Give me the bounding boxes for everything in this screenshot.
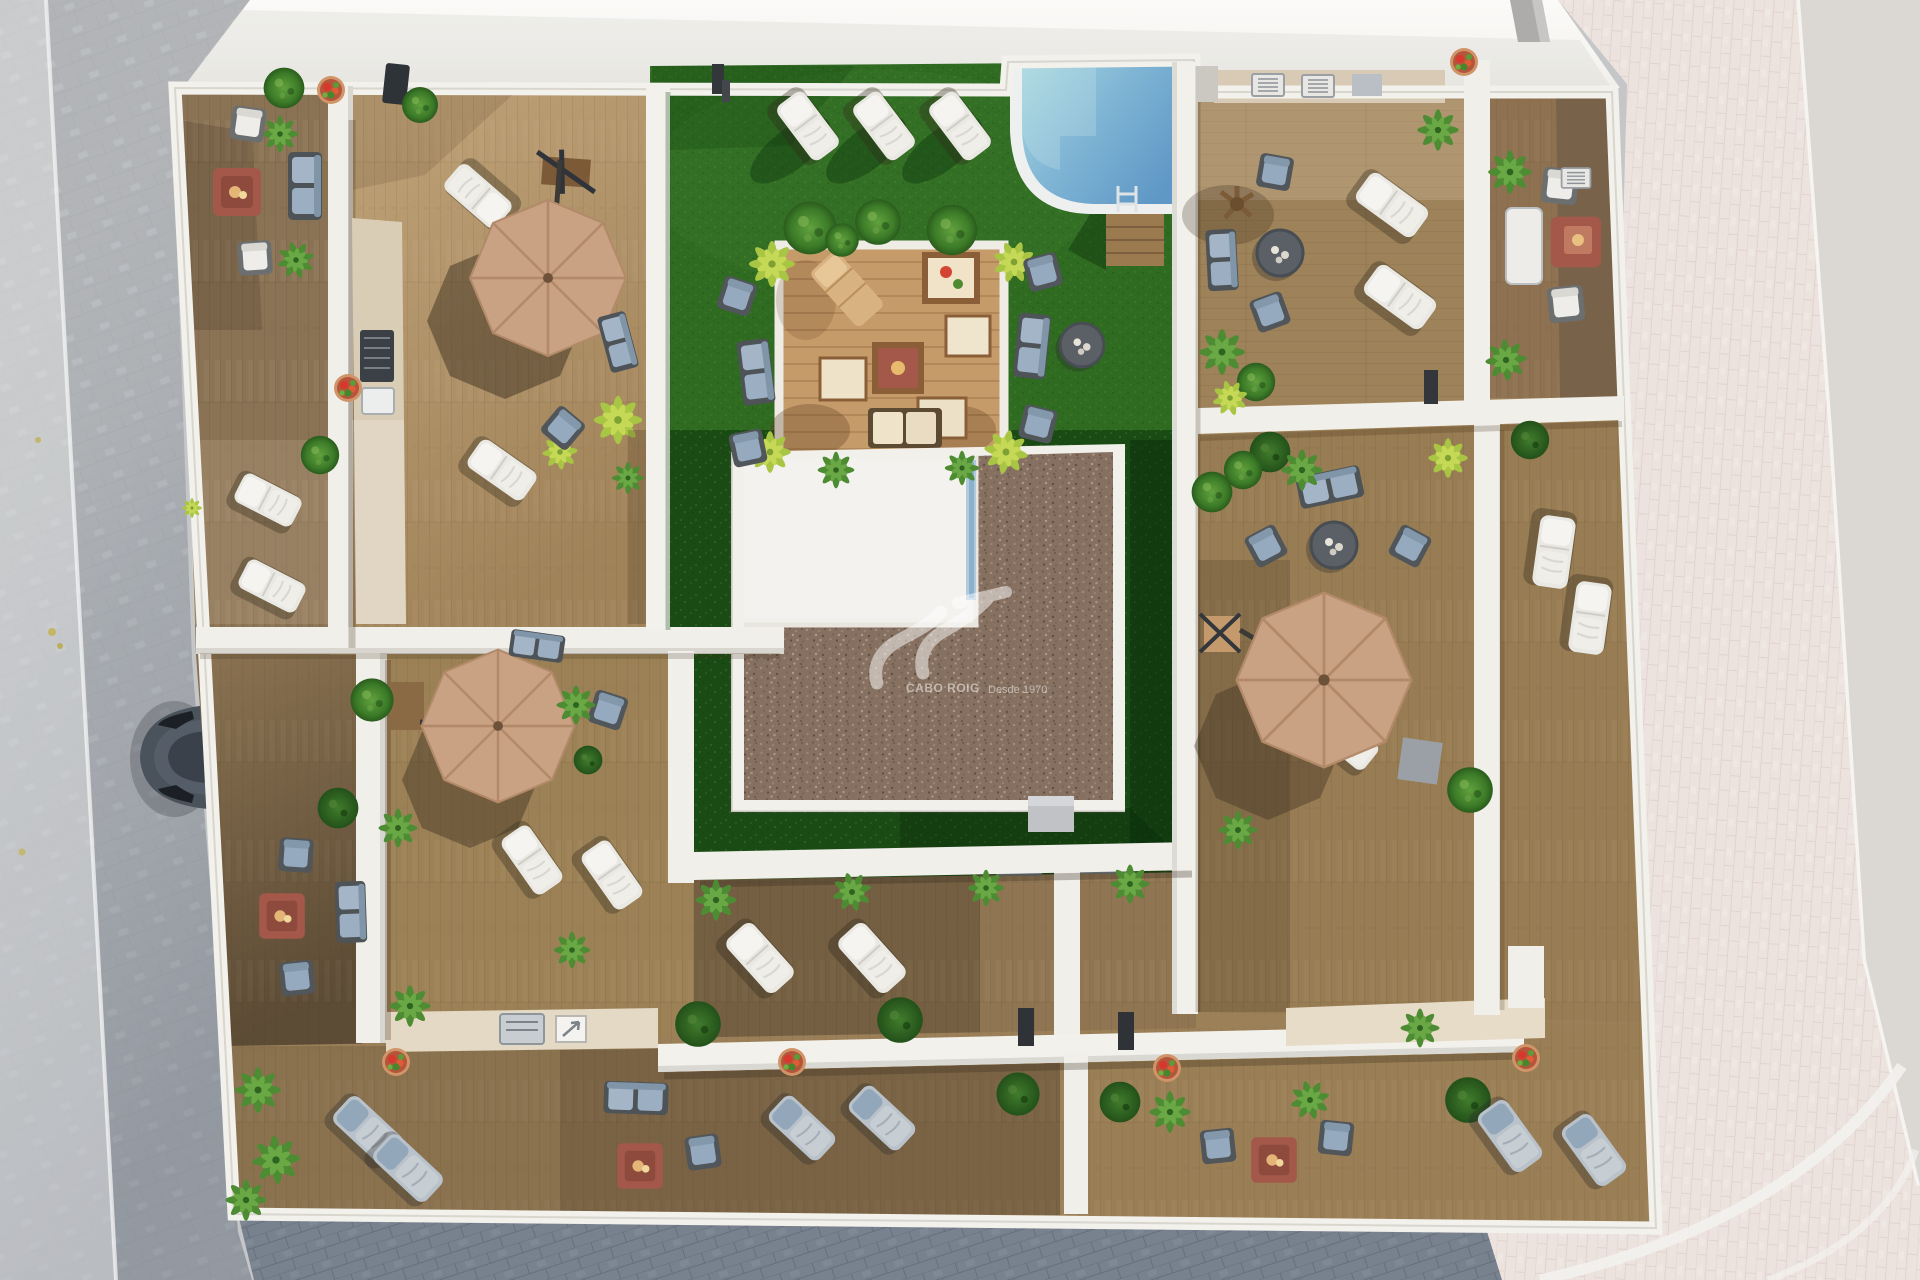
svg-text:CABO ROIG: CABO ROIG — [906, 681, 980, 695]
svg-text:Desde 1970: Desde 1970 — [988, 684, 1047, 696]
